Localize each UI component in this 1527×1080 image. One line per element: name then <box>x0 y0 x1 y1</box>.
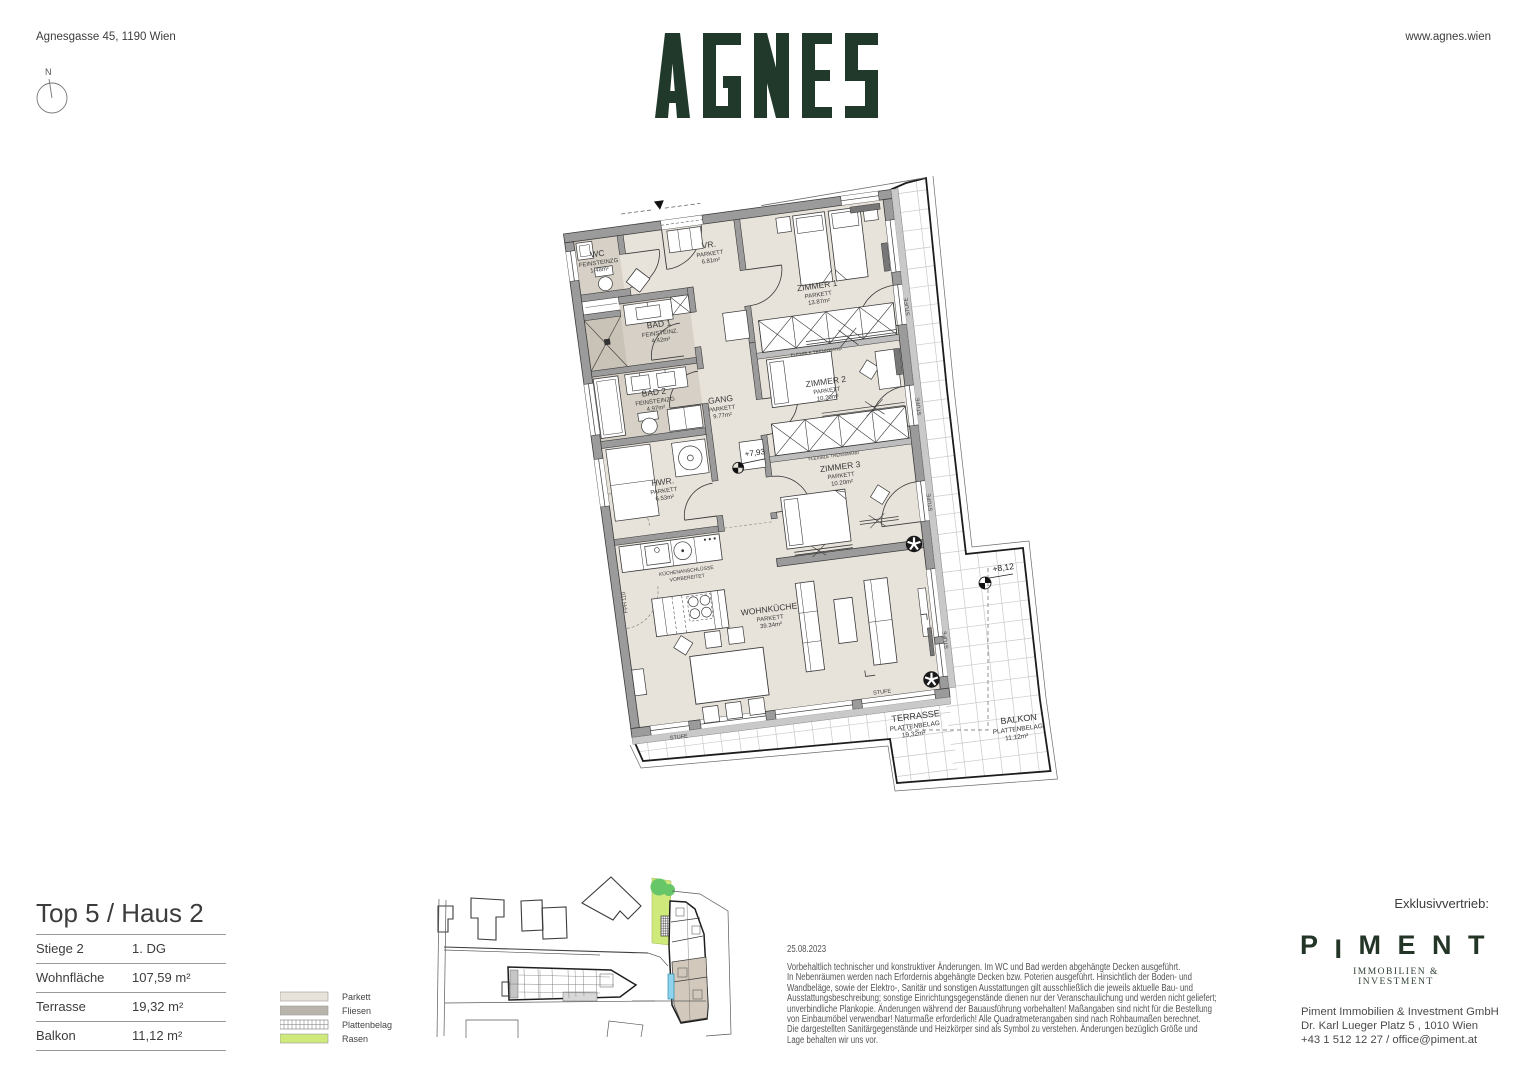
svg-text:VR.: VR. <box>701 239 716 251</box>
svg-text:Plattenbelag: Plattenbelag <box>342 1020 392 1030</box>
svg-text:Rasen: Rasen <box>342 1034 368 1044</box>
svg-text:Parkett: Parkett <box>342 992 371 1002</box>
svg-text:WC: WC <box>590 248 605 260</box>
svg-text:Fliesen: Fliesen <box>342 1006 371 1016</box>
